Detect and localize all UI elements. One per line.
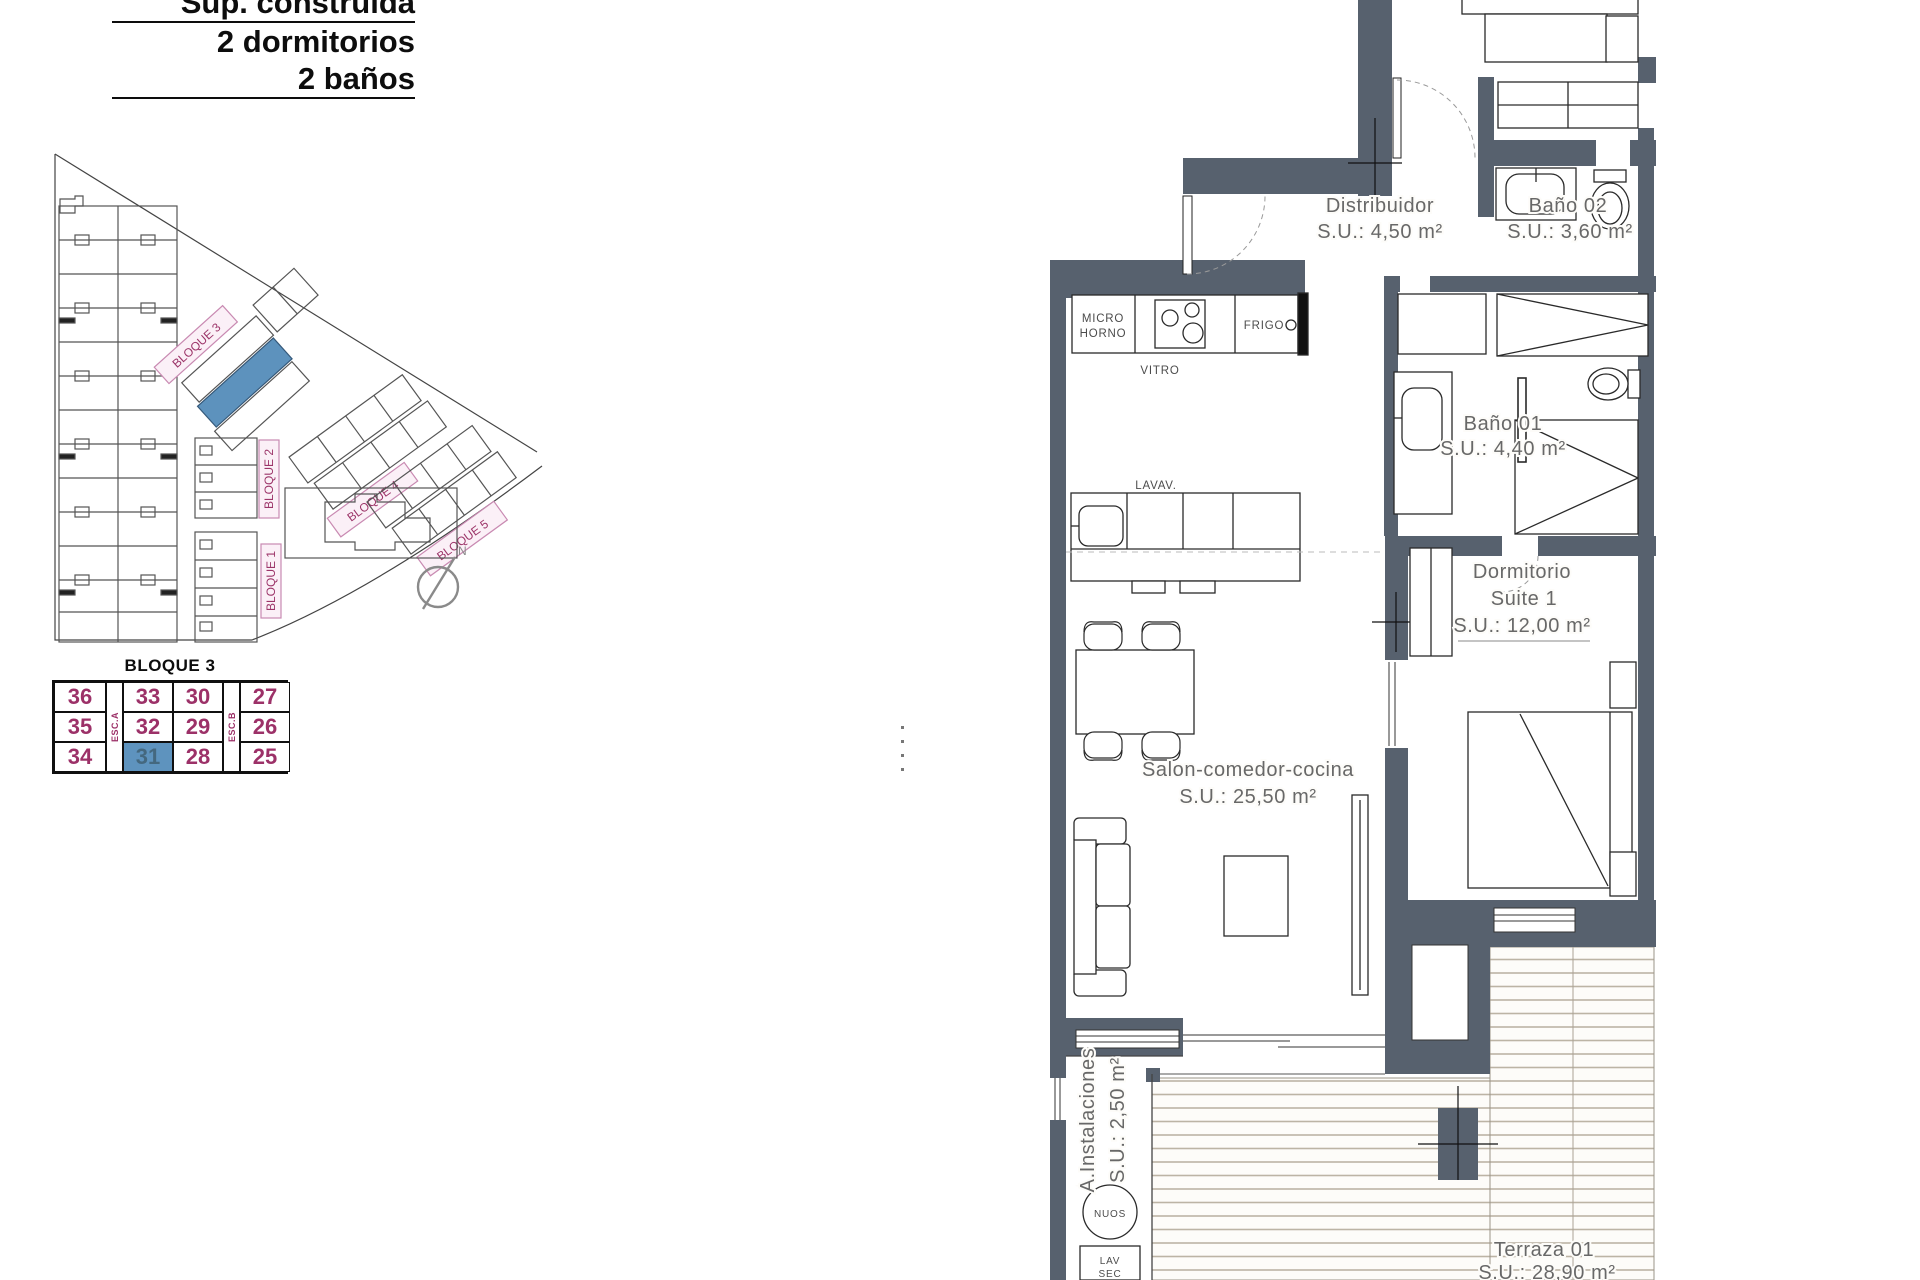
dining-table-icon	[1076, 650, 1194, 734]
label-frigo: FRIGO	[1244, 320, 1284, 332]
floor-plan: Distribuidor S.U.: 4,50 m² Baño 02 S.U.:…	[1050, 0, 1660, 1280]
room-label-salon: Salon-comedor-cocina	[1142, 759, 1354, 781]
page: Sup. construida 2 dormitorios 2 baños	[0, 0, 1920, 1280]
room-area-bano02: S.U.: 3,60 m²	[1507, 221, 1633, 243]
built-surface-label: Sup. construida	[112, 0, 415, 23]
summary-header: Sup. construida 2 dormitorios 2 baños	[112, 0, 415, 99]
unit-cell[interactable]: 35	[54, 712, 106, 742]
compass-north-label: N	[458, 544, 467, 558]
label-vitro: VITRO	[1140, 365, 1179, 377]
cooktop-icon	[1155, 300, 1205, 348]
label-horno: HORNO	[1080, 328, 1127, 340]
room-label-suite-1: Dormitorio	[1473, 561, 1571, 583]
site-plan: BLOQUE 3 BLOQUE 4 BLOQUE 5	[45, 150, 545, 655]
room-area-bano01: S.U.: 4,40 m²	[1440, 438, 1566, 460]
highlighted-building	[198, 338, 293, 427]
unit-cell[interactable]: 27	[240, 682, 290, 712]
room-area-salon: S.U.: 25,50 m²	[1179, 786, 1316, 808]
nightstand-icon	[1610, 852, 1636, 896]
site-block-label-2: BLOQUE 2	[262, 449, 276, 509]
room-label-distribuidor: Distribuidor	[1326, 195, 1434, 217]
room-area-instalaciones: S.U.: 2,50 m²	[1107, 1057, 1129, 1183]
room-label-suite-2: Suite 1	[1491, 588, 1557, 610]
bathrooms-label: 2 baños	[112, 60, 415, 99]
unit-cell[interactable]: 29	[173, 712, 223, 742]
room-label-instalaciones: A.Instalaciones	[1077, 1048, 1099, 1193]
stair-a-label: ESC.A	[106, 682, 123, 772]
room-area-suite: S.U.: 12,00 m²	[1453, 615, 1590, 637]
unit-cell-selected[interactable]: 31	[123, 742, 173, 772]
fold-marks	[901, 726, 904, 782]
nightstand-icon	[1610, 662, 1636, 708]
unit-cell[interactable]: 26	[240, 712, 290, 742]
site-block-label-1: BLOQUE 1	[264, 551, 278, 611]
room-label-bano01: Baño 01	[1464, 413, 1543, 435]
label-lav: LAV	[1100, 1256, 1121, 1267]
label-lavav: LAVAV.	[1135, 480, 1176, 492]
sofa-icon	[1074, 818, 1130, 996]
stair-b-label: ESC.B	[223, 682, 240, 772]
room-area-distribuidor: S.U.: 4,50 m²	[1317, 221, 1443, 243]
room-label-terraza: Terraza 01	[1494, 1239, 1595, 1261]
closet-icon	[1398, 294, 1486, 354]
room-label-bano02: Baño 02	[1529, 195, 1608, 217]
site-boundary	[55, 154, 537, 452]
kitchen-sink-icon	[1079, 506, 1123, 546]
unit-table: BLOQUE 3 36 ESC.A 33 30 ESC.B 27 35 32 2…	[52, 656, 288, 774]
x-wardrobe-icon	[1497, 294, 1648, 356]
rowhouse-column	[59, 206, 177, 642]
unit-cell[interactable]: 28	[173, 742, 223, 772]
island-counter	[1071, 493, 1300, 593]
bed-suite-icon	[1468, 712, 1632, 888]
tv-unit-icon	[1352, 795, 1368, 995]
unit-cell[interactable]: 33	[123, 682, 173, 712]
block4-cluster: BLOQUE 4	[285, 372, 462, 537]
wardrobe-2-icon	[1498, 82, 1638, 128]
site-boundary-2	[55, 154, 542, 640]
unit-table-title: BLOQUE 3	[52, 656, 288, 676]
coffee-table-icon	[1224, 856, 1288, 936]
middle-column	[195, 438, 257, 642]
suite-closet-icon	[1410, 548, 1452, 656]
label-nuos: NUOS	[1094, 1209, 1126, 1220]
bedrooms-label: 2 dormitorios	[112, 23, 415, 60]
block3-cluster: BLOQUE 3	[154, 253, 357, 451]
toilet-1-icon	[1588, 368, 1640, 400]
label-sec: SEC	[1099, 1269, 1122, 1280]
unit-cell[interactable]: 32	[123, 712, 173, 742]
bed-2-icon	[1462, 0, 1638, 62]
unit-cell[interactable]: 36	[54, 682, 106, 712]
fridge-door-icon	[1286, 320, 1296, 330]
room-area-terraza: S.U.: 28,90 m²	[1478, 1262, 1615, 1280]
unit-cell[interactable]: 30	[173, 682, 223, 712]
site-block-label-3: BLOQUE 3	[169, 320, 223, 371]
label-micro: MICRO	[1082, 313, 1124, 325]
unit-cell[interactable]: 25	[240, 742, 290, 772]
unit-cell[interactable]: 34	[54, 742, 106, 772]
